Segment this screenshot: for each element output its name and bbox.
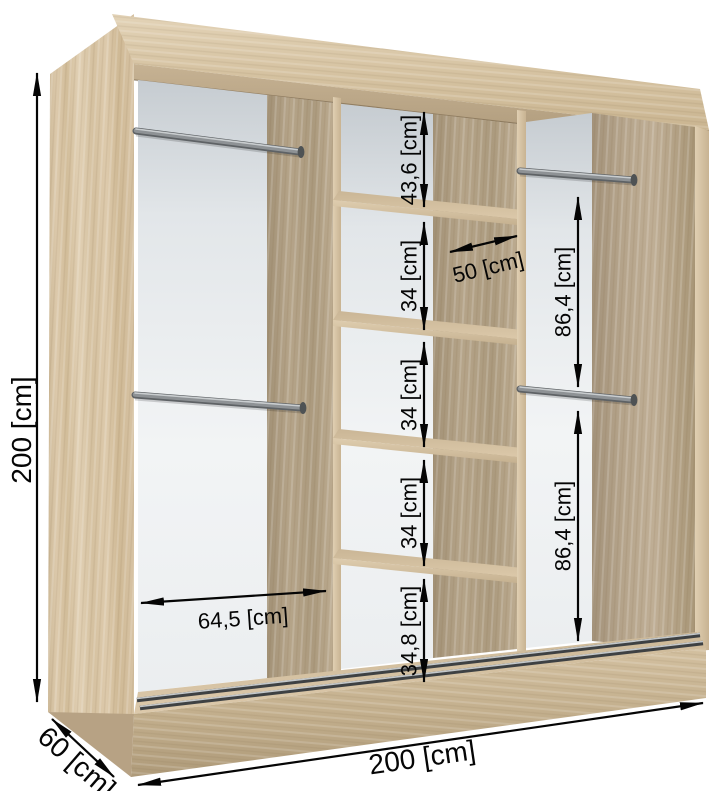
wardrobe-body [48, 14, 709, 777]
left-side-panel-grain [48, 14, 134, 716]
middle-partition-front-edge [333, 97, 341, 693]
right-front-stile [695, 126, 709, 651]
dimension-compartment5-label: 34,8 [cm] [397, 586, 422, 676]
rod-end-cap [300, 402, 307, 414]
rod-end-cap [631, 394, 638, 406]
dimension-compartment2-label: 34 [cm] [397, 240, 422, 312]
dimension-right-lower-label: 86,4 [cm] [551, 481, 576, 571]
wardrobe-dimension-diagram: 200 [cm] 60 [cm] 200 [cm] 43,6 [cm] 34 [… [0, 0, 712, 791]
right-side-panel-grain [592, 113, 695, 650]
rod-end-cap [298, 146, 305, 158]
diagram-canvas: 200 [cm] 60 [cm] 200 [cm] 43,6 [cm] 34 [… [0, 0, 712, 791]
dimension-height-label: 200 [cm] [6, 376, 37, 483]
dimension-compartment3-label: 34 [cm] [397, 359, 422, 431]
dimension-compartment1-label: 43,6 [cm] [397, 115, 422, 205]
rod-end-cap [631, 174, 638, 186]
left-back-panel [138, 80, 267, 692]
dimension-compartment4-label: 34 [cm] [397, 477, 422, 549]
dimension-right-upper-label: 86,4 [cm] [551, 247, 576, 337]
